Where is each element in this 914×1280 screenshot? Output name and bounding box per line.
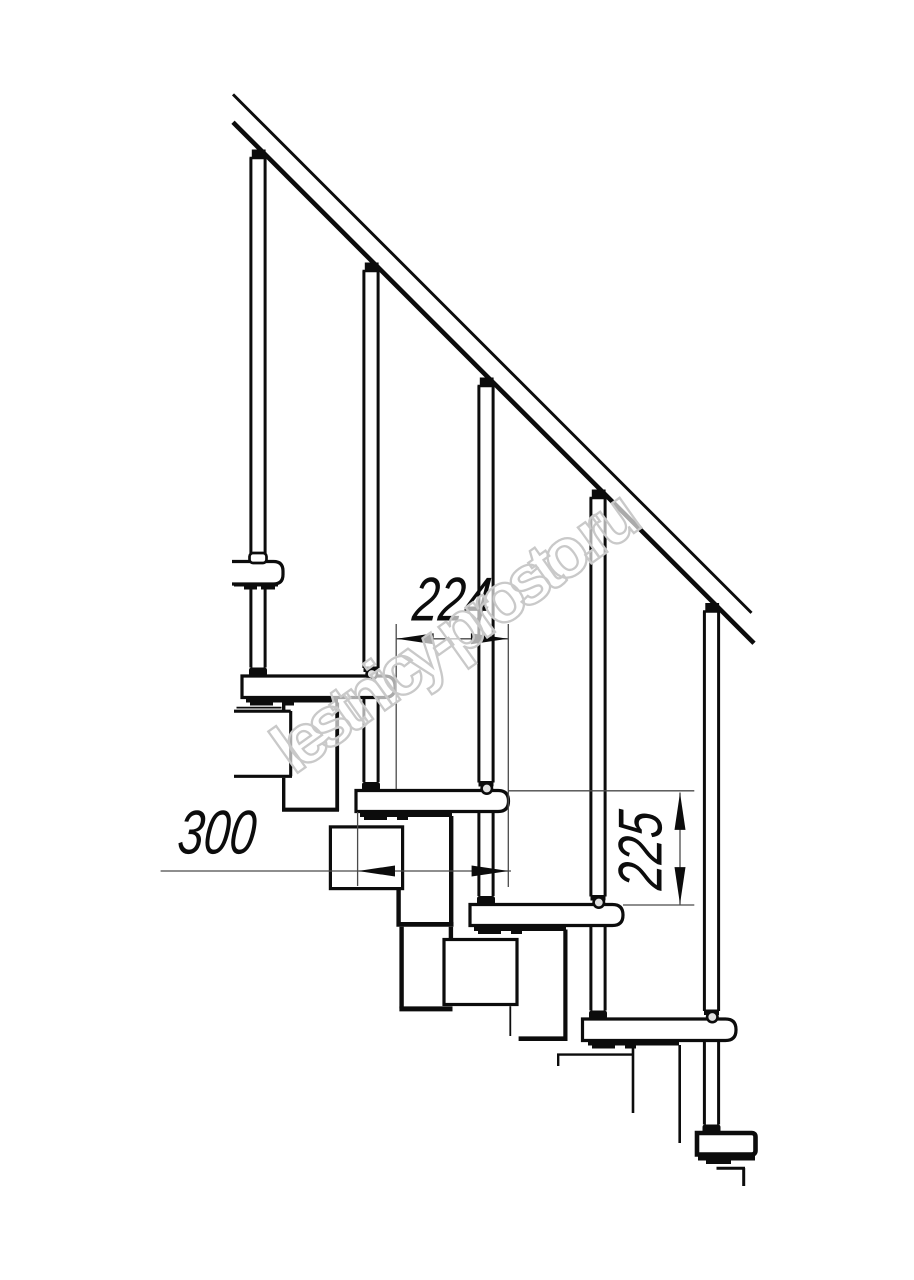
svg-text:300: 300 xyxy=(175,797,260,867)
svg-text:225: 225 xyxy=(605,807,675,893)
